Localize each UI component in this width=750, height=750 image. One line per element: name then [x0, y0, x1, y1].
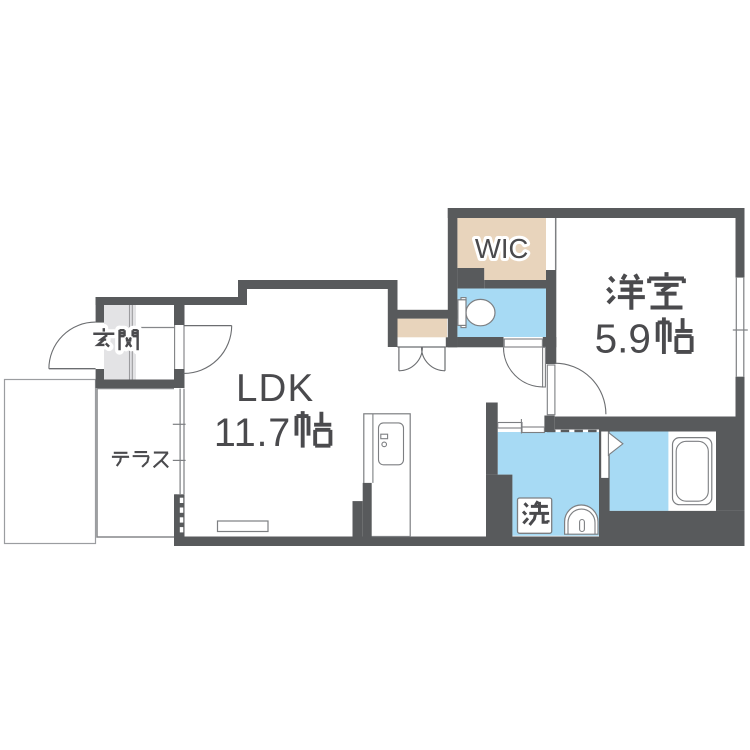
svg-text:5.9: 5.9: [595, 315, 651, 361]
svg-text:11.7: 11.7: [214, 411, 291, 455]
svg-text:WIC: WIC: [475, 233, 528, 264]
svg-text:LDK: LDK: [236, 367, 315, 410]
